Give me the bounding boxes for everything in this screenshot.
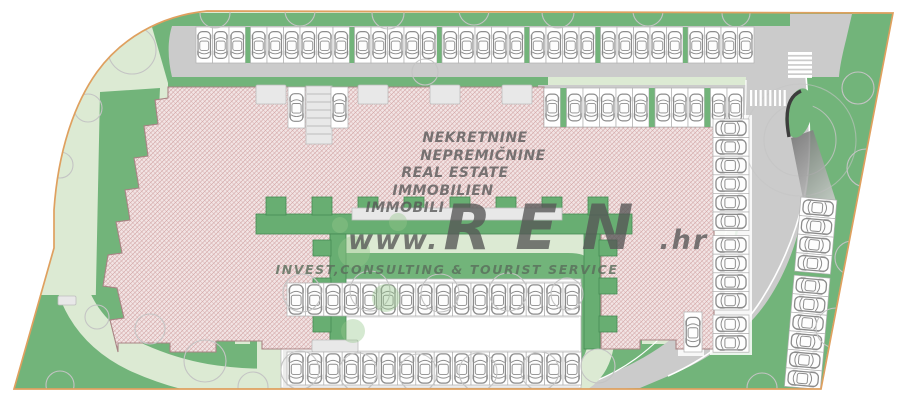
car-icon <box>789 351 820 370</box>
car-icon <box>689 32 703 59</box>
entrance-pad <box>58 296 76 305</box>
site-plan-drawing <box>0 0 900 406</box>
car-icon <box>716 316 746 332</box>
ramp-side-stall-west <box>288 87 305 128</box>
north-parking-row <box>196 27 754 63</box>
car-icon <box>716 293 746 309</box>
planting-divider <box>705 88 711 127</box>
shrub-icon <box>332 217 348 233</box>
car-icon <box>673 94 687 121</box>
crenel-tooth <box>588 197 608 215</box>
planting-divider <box>246 27 251 63</box>
car-icon <box>334 32 348 59</box>
car-icon <box>528 285 544 314</box>
car-icon <box>580 32 594 59</box>
car-icon <box>288 285 304 314</box>
car-icon <box>285 32 299 59</box>
car-icon <box>318 32 332 59</box>
junction-hatch-stripe <box>755 90 757 106</box>
car-icon <box>547 32 561 59</box>
car-icon <box>356 32 370 59</box>
car-icon <box>252 32 266 59</box>
car-icon <box>491 285 507 314</box>
car-icon <box>288 354 304 383</box>
crenel-tooth <box>313 240 331 256</box>
shrub-icon <box>341 319 365 343</box>
crenel-tooth <box>599 316 617 332</box>
junction-hatch-stripe <box>764 90 766 106</box>
car-icon <box>794 295 825 314</box>
car-icon <box>712 94 726 121</box>
car-icon <box>372 32 386 59</box>
car-icon <box>716 176 746 192</box>
car-icon <box>197 32 211 59</box>
car-icon <box>722 32 736 59</box>
car-icon <box>787 369 818 388</box>
car-icon <box>802 198 833 217</box>
courtyard-canopy <box>352 208 562 220</box>
car-icon <box>531 32 545 59</box>
crosswalk-stripe <box>788 57 812 60</box>
planting-divider <box>350 27 355 63</box>
car-icon <box>656 94 670 121</box>
car-icon <box>635 32 649 59</box>
car-icon <box>617 94 631 121</box>
shrub-icon <box>389 213 407 231</box>
car-icon <box>325 354 341 383</box>
car-icon <box>472 354 488 383</box>
car-icon <box>230 32 244 59</box>
car-icon <box>476 32 490 59</box>
car-icon <box>689 94 703 121</box>
entrance-pad <box>256 85 286 104</box>
car-icon <box>716 237 746 253</box>
crosswalk-stripe <box>788 70 812 73</box>
planting-divider <box>437 27 442 63</box>
car-icon <box>344 354 360 383</box>
car-icon <box>716 335 746 351</box>
car-icon <box>739 32 753 59</box>
junction-hatch-stripe <box>769 90 771 106</box>
car-icon <box>460 32 474 59</box>
planting-divider <box>525 27 530 63</box>
tree-canopy-icon <box>859 286 887 314</box>
southeast-corner-stall <box>684 312 702 352</box>
east-building-parking-column <box>713 119 749 352</box>
car-icon <box>564 354 580 383</box>
crenel-tooth <box>266 197 286 215</box>
car-icon <box>685 317 701 346</box>
entrance-pad <box>358 85 388 104</box>
car-icon <box>716 274 746 290</box>
car-icon <box>564 32 578 59</box>
car-icon <box>491 354 507 383</box>
car-icon <box>568 94 582 121</box>
junction-hatch-stripe <box>750 90 752 106</box>
car-icon <box>546 285 562 314</box>
car-icon <box>214 32 228 59</box>
car-icon <box>301 32 315 59</box>
site-plan: NEKRETNINE NEPREMIČNINE REAL ESTATE IMMO… <box>0 0 900 406</box>
car-icon <box>509 32 523 59</box>
car-icon <box>716 213 746 229</box>
crosswalk-stripe <box>788 66 812 69</box>
car-icon <box>716 120 746 136</box>
crenel-tooth <box>599 278 617 294</box>
car-icon <box>268 32 282 59</box>
crenel-tooth <box>312 197 332 215</box>
car-icon <box>389 32 403 59</box>
car-icon <box>602 32 616 59</box>
car-icon <box>405 32 419 59</box>
crosswalk-stripe <box>788 61 812 64</box>
junction-hatch-stripe <box>760 90 762 106</box>
car-icon <box>454 354 470 383</box>
planting-divider <box>596 27 601 63</box>
car-icon <box>601 94 615 121</box>
car-icon <box>618 32 632 59</box>
car-icon <box>728 94 742 121</box>
car-icon <box>454 285 470 314</box>
car-icon <box>289 94 304 122</box>
planting-divider <box>683 27 688 63</box>
car-icon <box>668 32 682 59</box>
car-icon <box>545 94 559 121</box>
car-icon <box>651 32 665 59</box>
crosswalk-stripe <box>788 52 812 55</box>
car-icon <box>332 94 347 122</box>
car-icon <box>528 354 544 383</box>
car-icon <box>716 255 746 271</box>
junction-hatch-stripe <box>774 90 776 106</box>
car-icon <box>422 32 436 59</box>
courtyard-south-parking-row <box>287 352 581 385</box>
crenel-tooth <box>313 316 331 332</box>
car-icon <box>801 217 832 236</box>
car-icon <box>796 277 827 296</box>
car-icon <box>799 236 830 255</box>
car-icon <box>798 254 829 273</box>
shrub-icon <box>372 284 400 312</box>
car-icon <box>436 354 452 383</box>
car-icon <box>716 139 746 155</box>
car-icon <box>325 285 341 314</box>
planting-divider <box>649 88 655 127</box>
car-icon <box>380 354 396 383</box>
car-icon <box>443 32 457 59</box>
entrance-pad <box>430 85 460 104</box>
car-icon <box>716 195 746 211</box>
car-icon <box>493 32 507 59</box>
garage-ramp-icon <box>306 86 332 144</box>
junction-hatch-stripe <box>784 90 786 106</box>
car-icon <box>399 285 415 314</box>
car-icon <box>706 32 720 59</box>
junction-hatch-stripe <box>779 90 781 106</box>
entrance-pad <box>502 85 532 104</box>
ramp-side-stall-east <box>331 87 348 128</box>
car-icon <box>584 94 598 121</box>
car-icon <box>634 94 648 121</box>
car-icon <box>509 285 525 314</box>
car-icon <box>472 285 488 314</box>
shrub-icon <box>338 236 370 268</box>
crenel-tooth <box>599 240 617 256</box>
crenellated-band <box>584 234 600 349</box>
crosswalk-stripe <box>788 75 812 78</box>
car-icon <box>716 157 746 173</box>
planting-divider <box>561 88 567 127</box>
